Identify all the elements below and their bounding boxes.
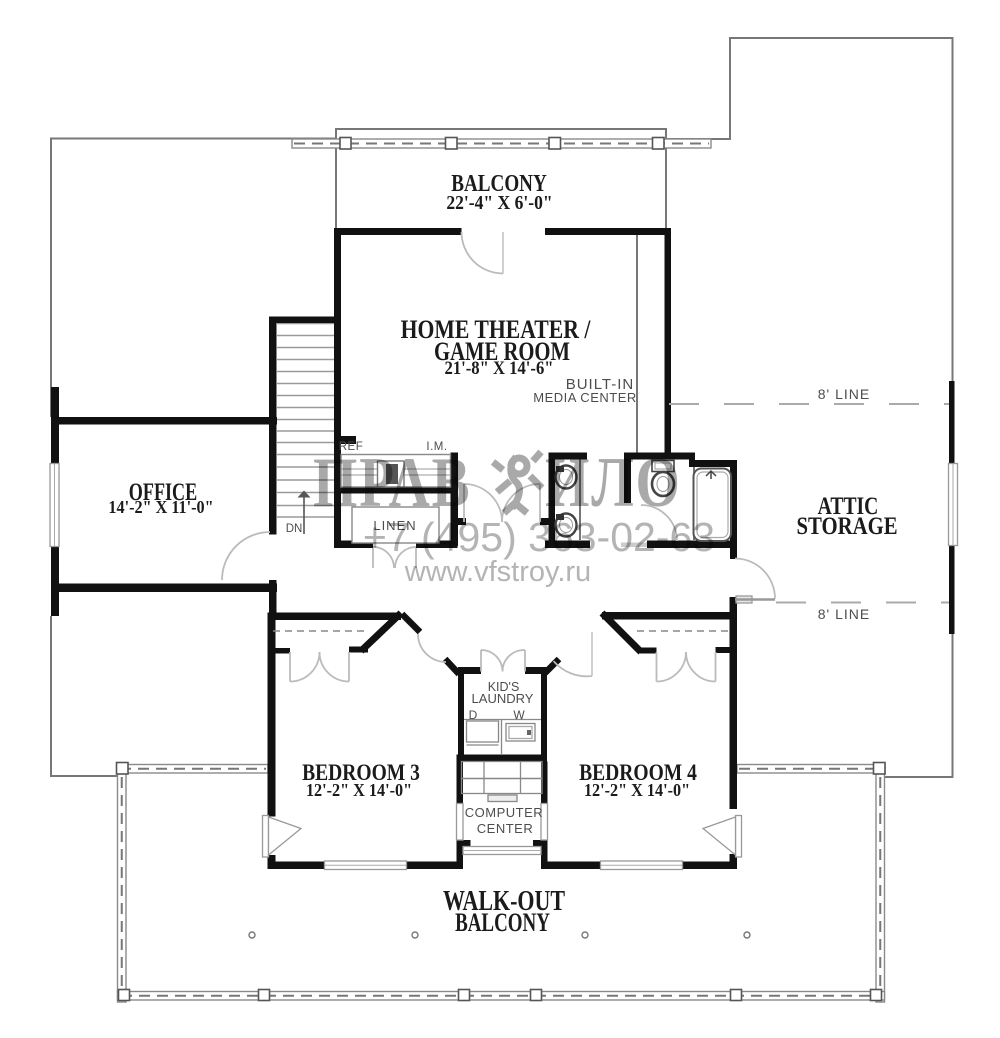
svg-text:www.vfstroy.ru: www.vfstroy.ru <box>404 556 591 588</box>
svg-text:8' LINE: 8' LINE <box>818 606 870 622</box>
svg-text:W: W <box>513 708 525 722</box>
svg-text:22'-4" X 6'-0": 22'-4" X 6'-0" <box>446 192 552 214</box>
svg-text:COMPUTER: COMPUTER <box>465 805 543 820</box>
svg-text:8' LINE: 8' LINE <box>818 386 870 402</box>
svg-text:ПРАВ: ПРАВ <box>313 443 472 521</box>
svg-text:ИЛО: ИЛО <box>545 443 682 521</box>
svg-text:21'-8" X 14'-6": 21'-8" X 14'-6" <box>444 357 553 378</box>
svg-text:D: D <box>469 708 478 722</box>
svg-text:LAUNDRY: LAUNDRY <box>472 691 534 706</box>
svg-text:14'-2" X 11'-0": 14'-2" X 11'-0" <box>108 497 213 517</box>
svg-text:12'-2" X 14'-0": 12'-2" X 14'-0" <box>584 780 690 800</box>
svg-text:BALCONY: BALCONY <box>455 908 550 937</box>
svg-text:+7 (495) 363-02-63: +7 (495) 363-02-63 <box>363 514 715 560</box>
svg-text:MEDIA CENTER: MEDIA CENTER <box>533 390 637 405</box>
svg-text:12'-2" X 14'-0": 12'-2" X 14'-0" <box>306 780 412 800</box>
svg-text:DN: DN <box>286 523 303 535</box>
svg-text:CENTER: CENTER <box>477 821 533 836</box>
svg-text:STORAGE: STORAGE <box>796 512 897 539</box>
